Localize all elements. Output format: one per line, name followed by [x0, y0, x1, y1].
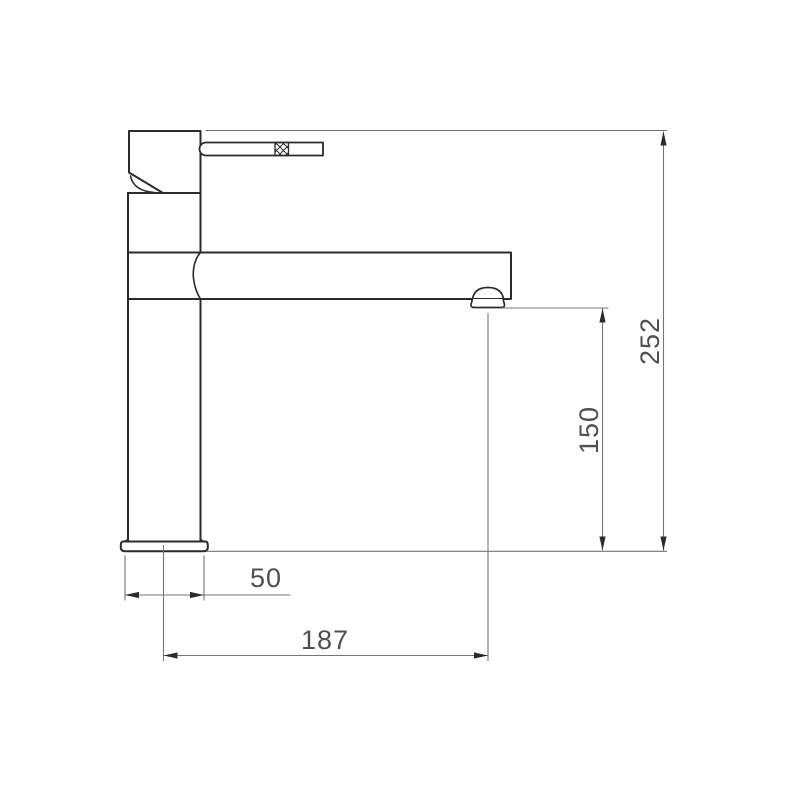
faucet-outline [121, 131, 511, 551]
lever-hatch-section [275, 143, 289, 156]
arrowhead-right-icon [190, 592, 204, 598]
arrowhead-up-icon [599, 309, 605, 323]
dimension-lines [125, 131, 667, 662]
base-plate [121, 542, 208, 552]
arrowhead-down-icon [599, 537, 605, 551]
spout-body-curve [193, 253, 200, 300]
faucet-head [129, 131, 201, 193]
arrowhead-right-icon [474, 652, 488, 658]
arrowhead-left-icon [164, 652, 178, 658]
aerator-dome [473, 288, 504, 300]
arrowhead-up-icon [660, 132, 666, 146]
drawing-svg: 252 150 50 187 [0, 0, 800, 800]
lever-handle [200, 143, 324, 156]
label-base-width: 50 [250, 563, 282, 593]
arrowhead-down-icon [660, 537, 666, 551]
label-outlet-height: 150 [574, 406, 604, 454]
faucet-dimension-drawing: 252 150 50 187 [0, 0, 800, 800]
label-spout-reach: 187 [301, 625, 349, 655]
faucet-spout [128, 253, 511, 300]
label-overall-height: 252 [635, 317, 665, 365]
aerator-collar [471, 299, 505, 308]
arrowhead-left-icon [125, 592, 139, 598]
